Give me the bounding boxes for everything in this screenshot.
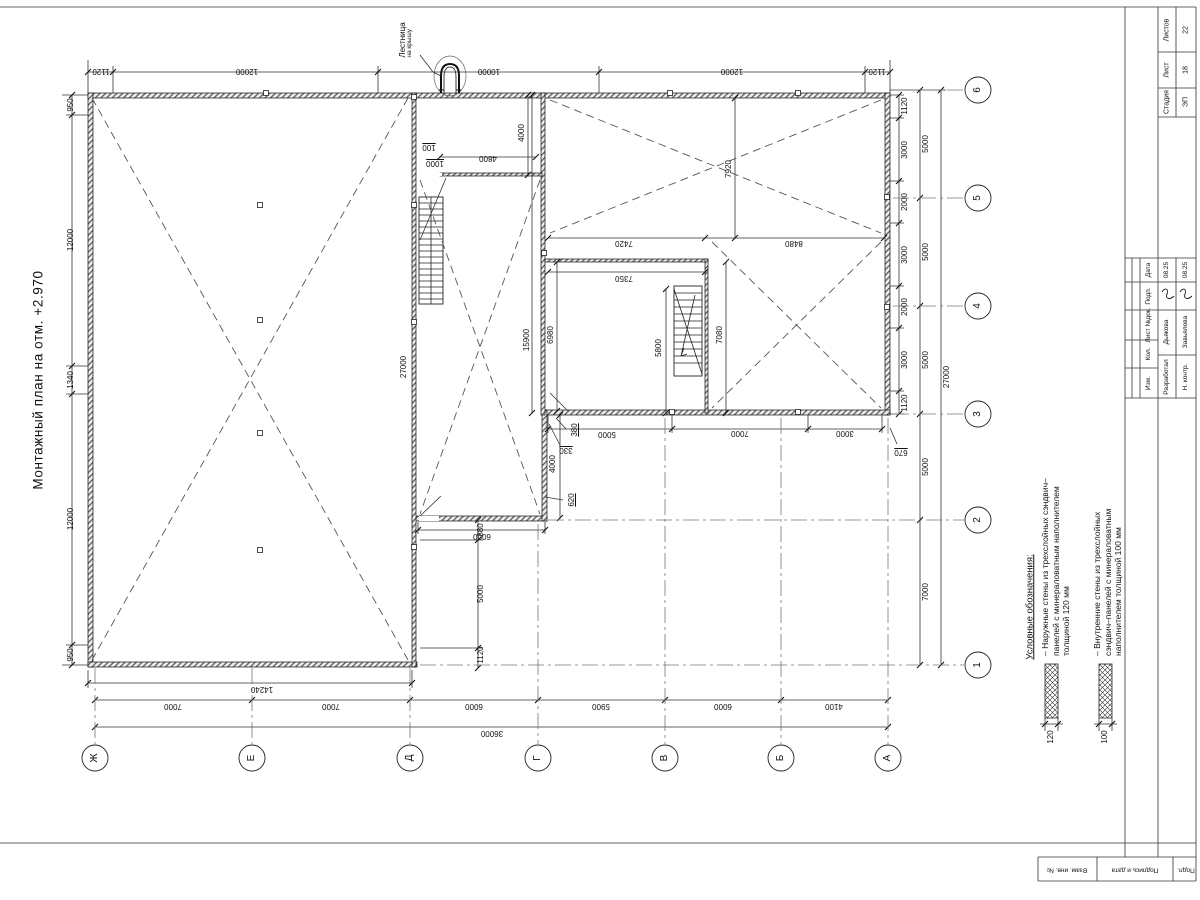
axis-number: 3 bbox=[973, 411, 983, 417]
dim-label: 7000 bbox=[164, 702, 182, 710]
legend-thickness-label: 120 bbox=[1047, 730, 1055, 743]
dim-label: 4800 bbox=[479, 154, 497, 162]
dim-label: 7000 bbox=[322, 702, 340, 710]
plan-linework bbox=[0, 0, 1200, 900]
dim-label: 7920 bbox=[725, 160, 733, 178]
dim-label: 3000 bbox=[901, 141, 909, 159]
dim-label: 330 bbox=[559, 446, 572, 454]
dim-label: 6000 bbox=[465, 702, 483, 710]
dim-label: 4000 bbox=[518, 124, 526, 142]
axis-letter: Ж bbox=[90, 753, 100, 762]
dim-label: 5000 bbox=[477, 585, 485, 603]
axis-letter: Е bbox=[247, 755, 257, 762]
stamp-header-cell: Лист №док. bbox=[1146, 308, 1153, 343]
dim-label: 1120 bbox=[868, 67, 885, 75]
dim-label: 7000 bbox=[731, 429, 749, 437]
legend-header: Условные обозначения: bbox=[1025, 554, 1035, 659]
dim-label: 3000 bbox=[836, 429, 854, 437]
dim-label: 7000 bbox=[922, 583, 930, 601]
dim-label: 5800 bbox=[655, 339, 663, 357]
dim-label: 27000 bbox=[943, 366, 951, 388]
dim-label: 3000 bbox=[901, 246, 909, 264]
dim-label: 4100 bbox=[825, 702, 843, 710]
dim-label: 14240 bbox=[251, 685, 273, 693]
dim-label: 36000 bbox=[481, 729, 503, 737]
stamp-sheets-value: 22 bbox=[1183, 26, 1190, 34]
stamp-stage-value: ЭП bbox=[1183, 97, 1190, 107]
axis-letter: В bbox=[660, 755, 670, 762]
stamp-row-name: Дьякова bbox=[1164, 320, 1171, 345]
stamp-header-cell: Изм. bbox=[1146, 376, 1153, 390]
stamp-stage-label: Стадия bbox=[1164, 90, 1171, 114]
stamp-header-cell: Дата bbox=[1146, 263, 1153, 277]
dim-label: 7350 bbox=[615, 274, 633, 282]
dim-label: 12000 bbox=[67, 508, 75, 530]
stamp-header-cell: Подп. bbox=[1146, 287, 1153, 304]
axis-letter: Г bbox=[533, 755, 543, 760]
stamp-sheets-label: Листов bbox=[1164, 19, 1171, 42]
axis-number: 5 bbox=[973, 195, 983, 201]
dim-label: 3000 bbox=[901, 351, 909, 369]
dim-label: 380 bbox=[571, 423, 579, 436]
dim-label: 7080 bbox=[716, 326, 724, 344]
dim-label: 6980 bbox=[547, 326, 555, 344]
stamp-row-role: Н. контр. bbox=[1183, 364, 1190, 391]
dim-label: 950 bbox=[67, 98, 75, 111]
axis-letter: Б bbox=[776, 755, 786, 762]
dim-label: 5000 bbox=[922, 351, 930, 369]
dim-label: 5000 bbox=[922, 243, 930, 261]
dim-label: 27000 bbox=[400, 356, 408, 378]
dim-label: 100 bbox=[422, 143, 435, 151]
dim-label: 10000 bbox=[478, 67, 500, 75]
axis-number: 2 bbox=[973, 517, 983, 523]
dim-label: 12000 bbox=[67, 229, 75, 251]
side-strip-cell: Взам. инв. № bbox=[1047, 866, 1087, 873]
axis-number: 4 bbox=[973, 303, 983, 309]
dim-label: 1120 bbox=[92, 67, 109, 75]
legend-item-text: – Наружные стены из трехслойных сэндвич–… bbox=[1040, 478, 1072, 656]
drawing-sheet: Монтажный план на отм. +2.970 Лестница н… bbox=[0, 0, 1200, 900]
dim-label: 1340 bbox=[67, 371, 75, 389]
axis-number: 1 bbox=[973, 662, 983, 668]
stamp-row-date: 08.25 bbox=[1164, 262, 1171, 278]
stamp-row-date: 08.25 bbox=[1183, 262, 1190, 278]
ladder-note: Лестница на крышу bbox=[399, 22, 414, 57]
dim-label: 15900 bbox=[523, 329, 531, 351]
dim-label: 8480 bbox=[785, 239, 803, 247]
dim-label: 950 bbox=[67, 648, 75, 661]
dim-label: 2000 bbox=[901, 298, 909, 316]
axis-number: 6 bbox=[973, 87, 983, 93]
dim-label: 1120 bbox=[477, 646, 485, 663]
dim-label: 620 bbox=[568, 493, 576, 506]
dim-label: 12000 bbox=[236, 67, 258, 75]
dim-label: 2000 bbox=[901, 193, 909, 211]
dim-label: 670 bbox=[894, 448, 907, 456]
ladder-note-line2: на крышу bbox=[407, 22, 414, 57]
axis-letter: Д bbox=[405, 755, 415, 762]
stamp-header-cell: Кол. bbox=[1146, 348, 1153, 361]
stamp-row-name: Завьялова bbox=[1183, 316, 1190, 348]
stamp-sheet-label: Лист bbox=[1164, 62, 1171, 77]
dim-label: 5900 bbox=[592, 702, 610, 710]
stamp-sheet-value: 18 bbox=[1183, 66, 1190, 74]
side-strip-cell: Подпись и дата bbox=[1112, 866, 1159, 873]
drawing-title: Монтажный план на отм. +2.970 bbox=[31, 270, 45, 489]
side-strip-cell: Подл. bbox=[1177, 866, 1195, 873]
dim-label: 4000 bbox=[549, 455, 557, 473]
dim-label: 1120 bbox=[901, 394, 909, 411]
dim-label: 7420 bbox=[615, 239, 633, 247]
dim-label: 5000 bbox=[922, 135, 930, 153]
legend-thickness-label: 100 bbox=[1101, 730, 1109, 743]
dim-label: 5000 bbox=[922, 458, 930, 476]
dim-label: 12000 bbox=[721, 67, 743, 75]
dim-label: 5000 bbox=[598, 430, 616, 438]
dim-label: 1120 bbox=[901, 97, 909, 114]
stamp-row-role: Разработал bbox=[1164, 359, 1171, 394]
legend-item-text: – Внутренние стены из трехслойных сэндви… bbox=[1092, 478, 1124, 656]
dim-label: 880 bbox=[477, 523, 485, 536]
dim-label: 6000 bbox=[714, 702, 732, 710]
dim-label: 1000 bbox=[426, 159, 444, 167]
axis-letter: А bbox=[883, 755, 893, 762]
